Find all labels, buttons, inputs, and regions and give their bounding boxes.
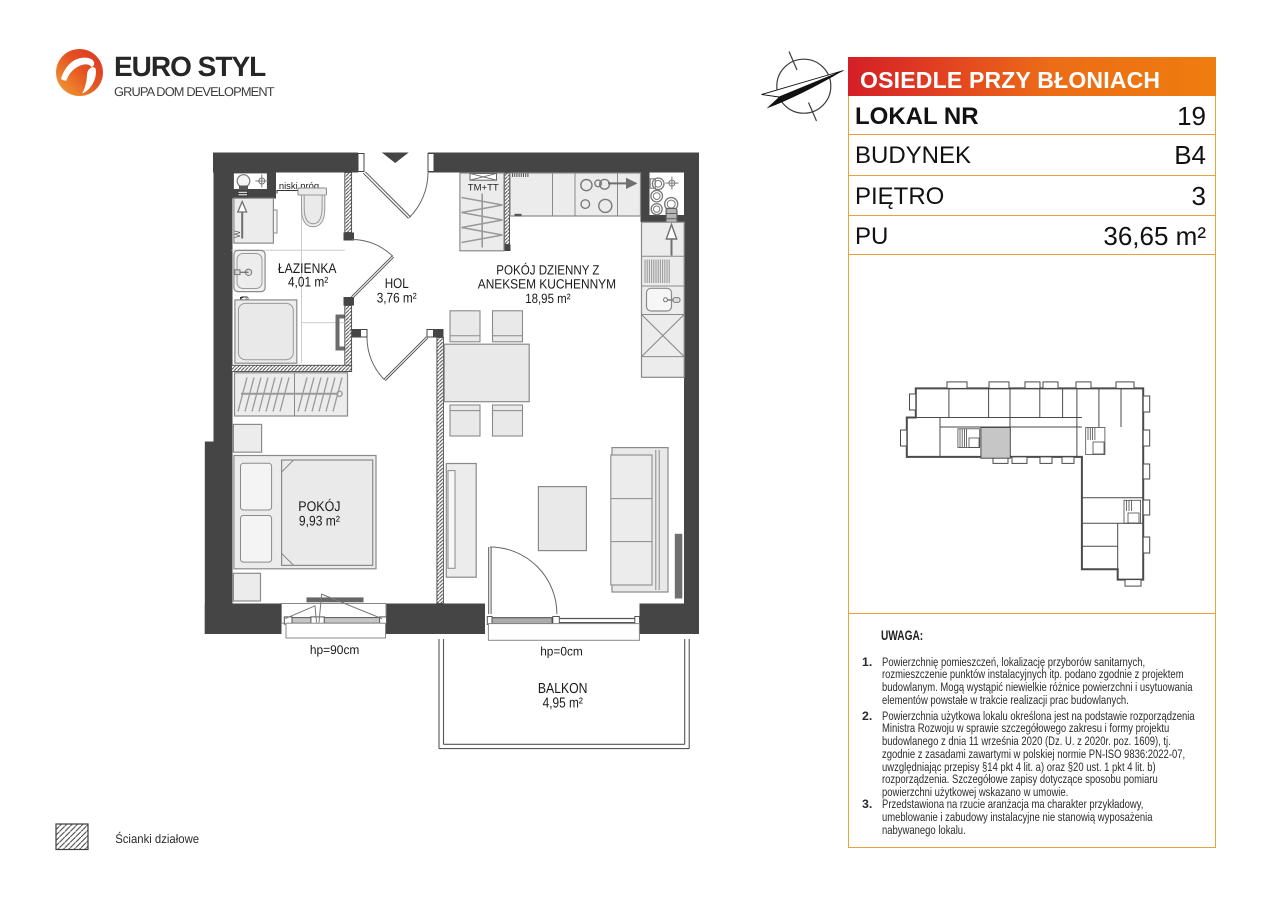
svg-text:W: W — [233, 230, 242, 238]
svg-text:9,93 m²: 9,93 m² — [299, 513, 340, 529]
svg-text:3,76 m²: 3,76 m² — [377, 290, 417, 306]
svg-text:POKÓJ DZIENNY Z: POKÓJ DZIENNY Z — [496, 263, 599, 278]
svg-text:HOL: HOL — [385, 275, 409, 291]
svg-text:hp=0cm: hp=0cm — [540, 644, 583, 658]
svg-text:GRUPA DOM DEVELOPMENT: GRUPA DOM DEVELOPMENT — [114, 84, 275, 99]
svg-text:TM+TT: TM+TT — [468, 182, 499, 193]
svg-text:18,95 m²: 18,95 m² — [525, 291, 571, 306]
svg-text:ANEKSEM KUCHENNYM: ANEKSEM KUCHENNYM — [478, 277, 616, 292]
svg-text:4,01 m²: 4,01 m² — [288, 274, 329, 290]
svg-text:EURO STYL: EURO STYL — [114, 51, 266, 82]
svg-text:Ścianki działowe: Ścianki działowe — [115, 831, 199, 846]
svg-text:4,95 m²: 4,95 m² — [543, 695, 583, 711]
svg-text:hp=90cm: hp=90cm — [310, 643, 360, 657]
